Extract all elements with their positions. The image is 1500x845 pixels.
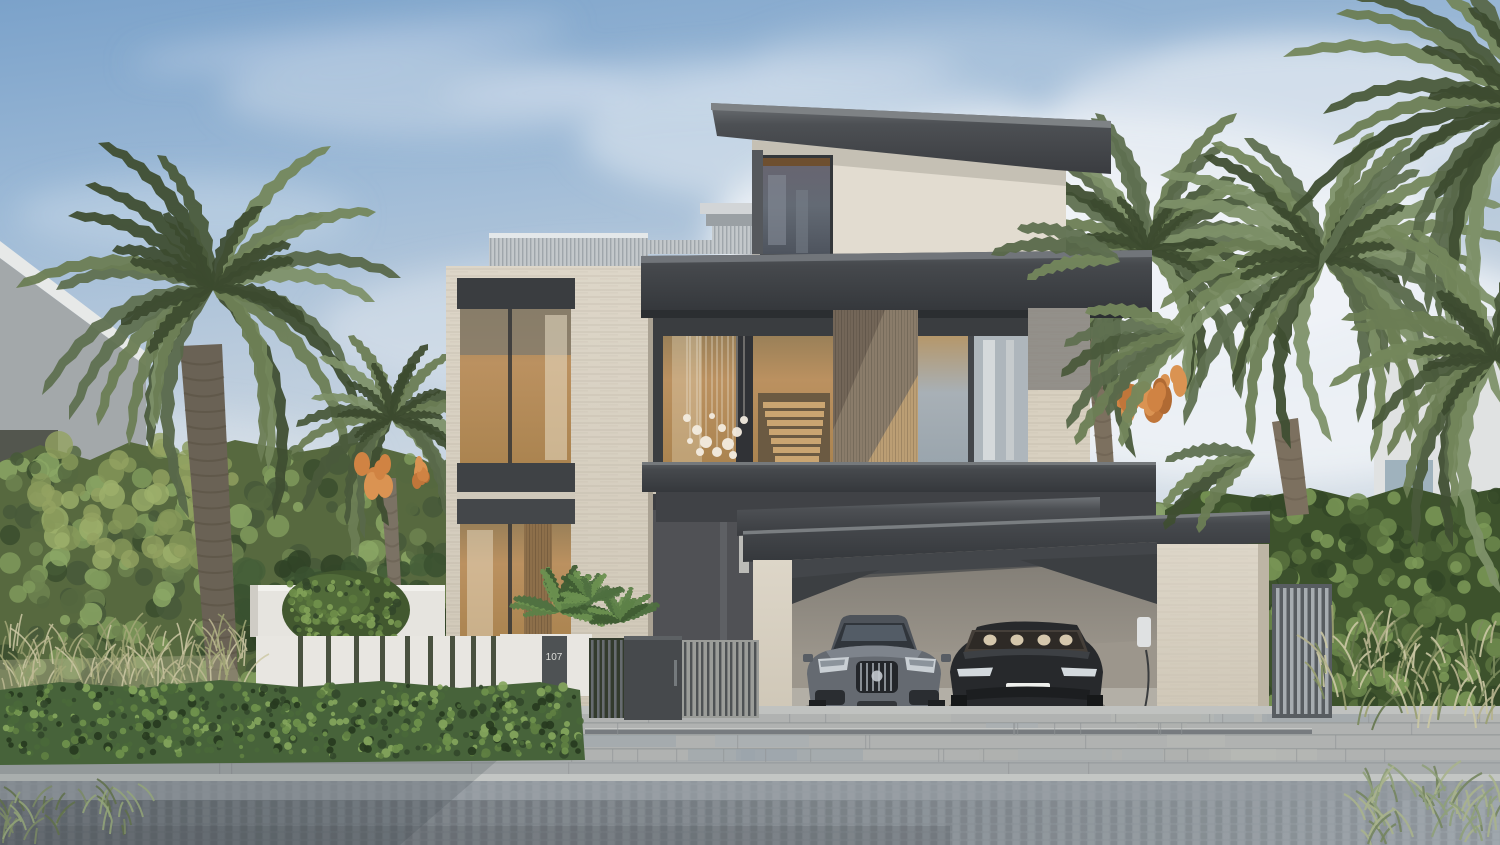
svg-text:107: 107 [546, 652, 563, 663]
